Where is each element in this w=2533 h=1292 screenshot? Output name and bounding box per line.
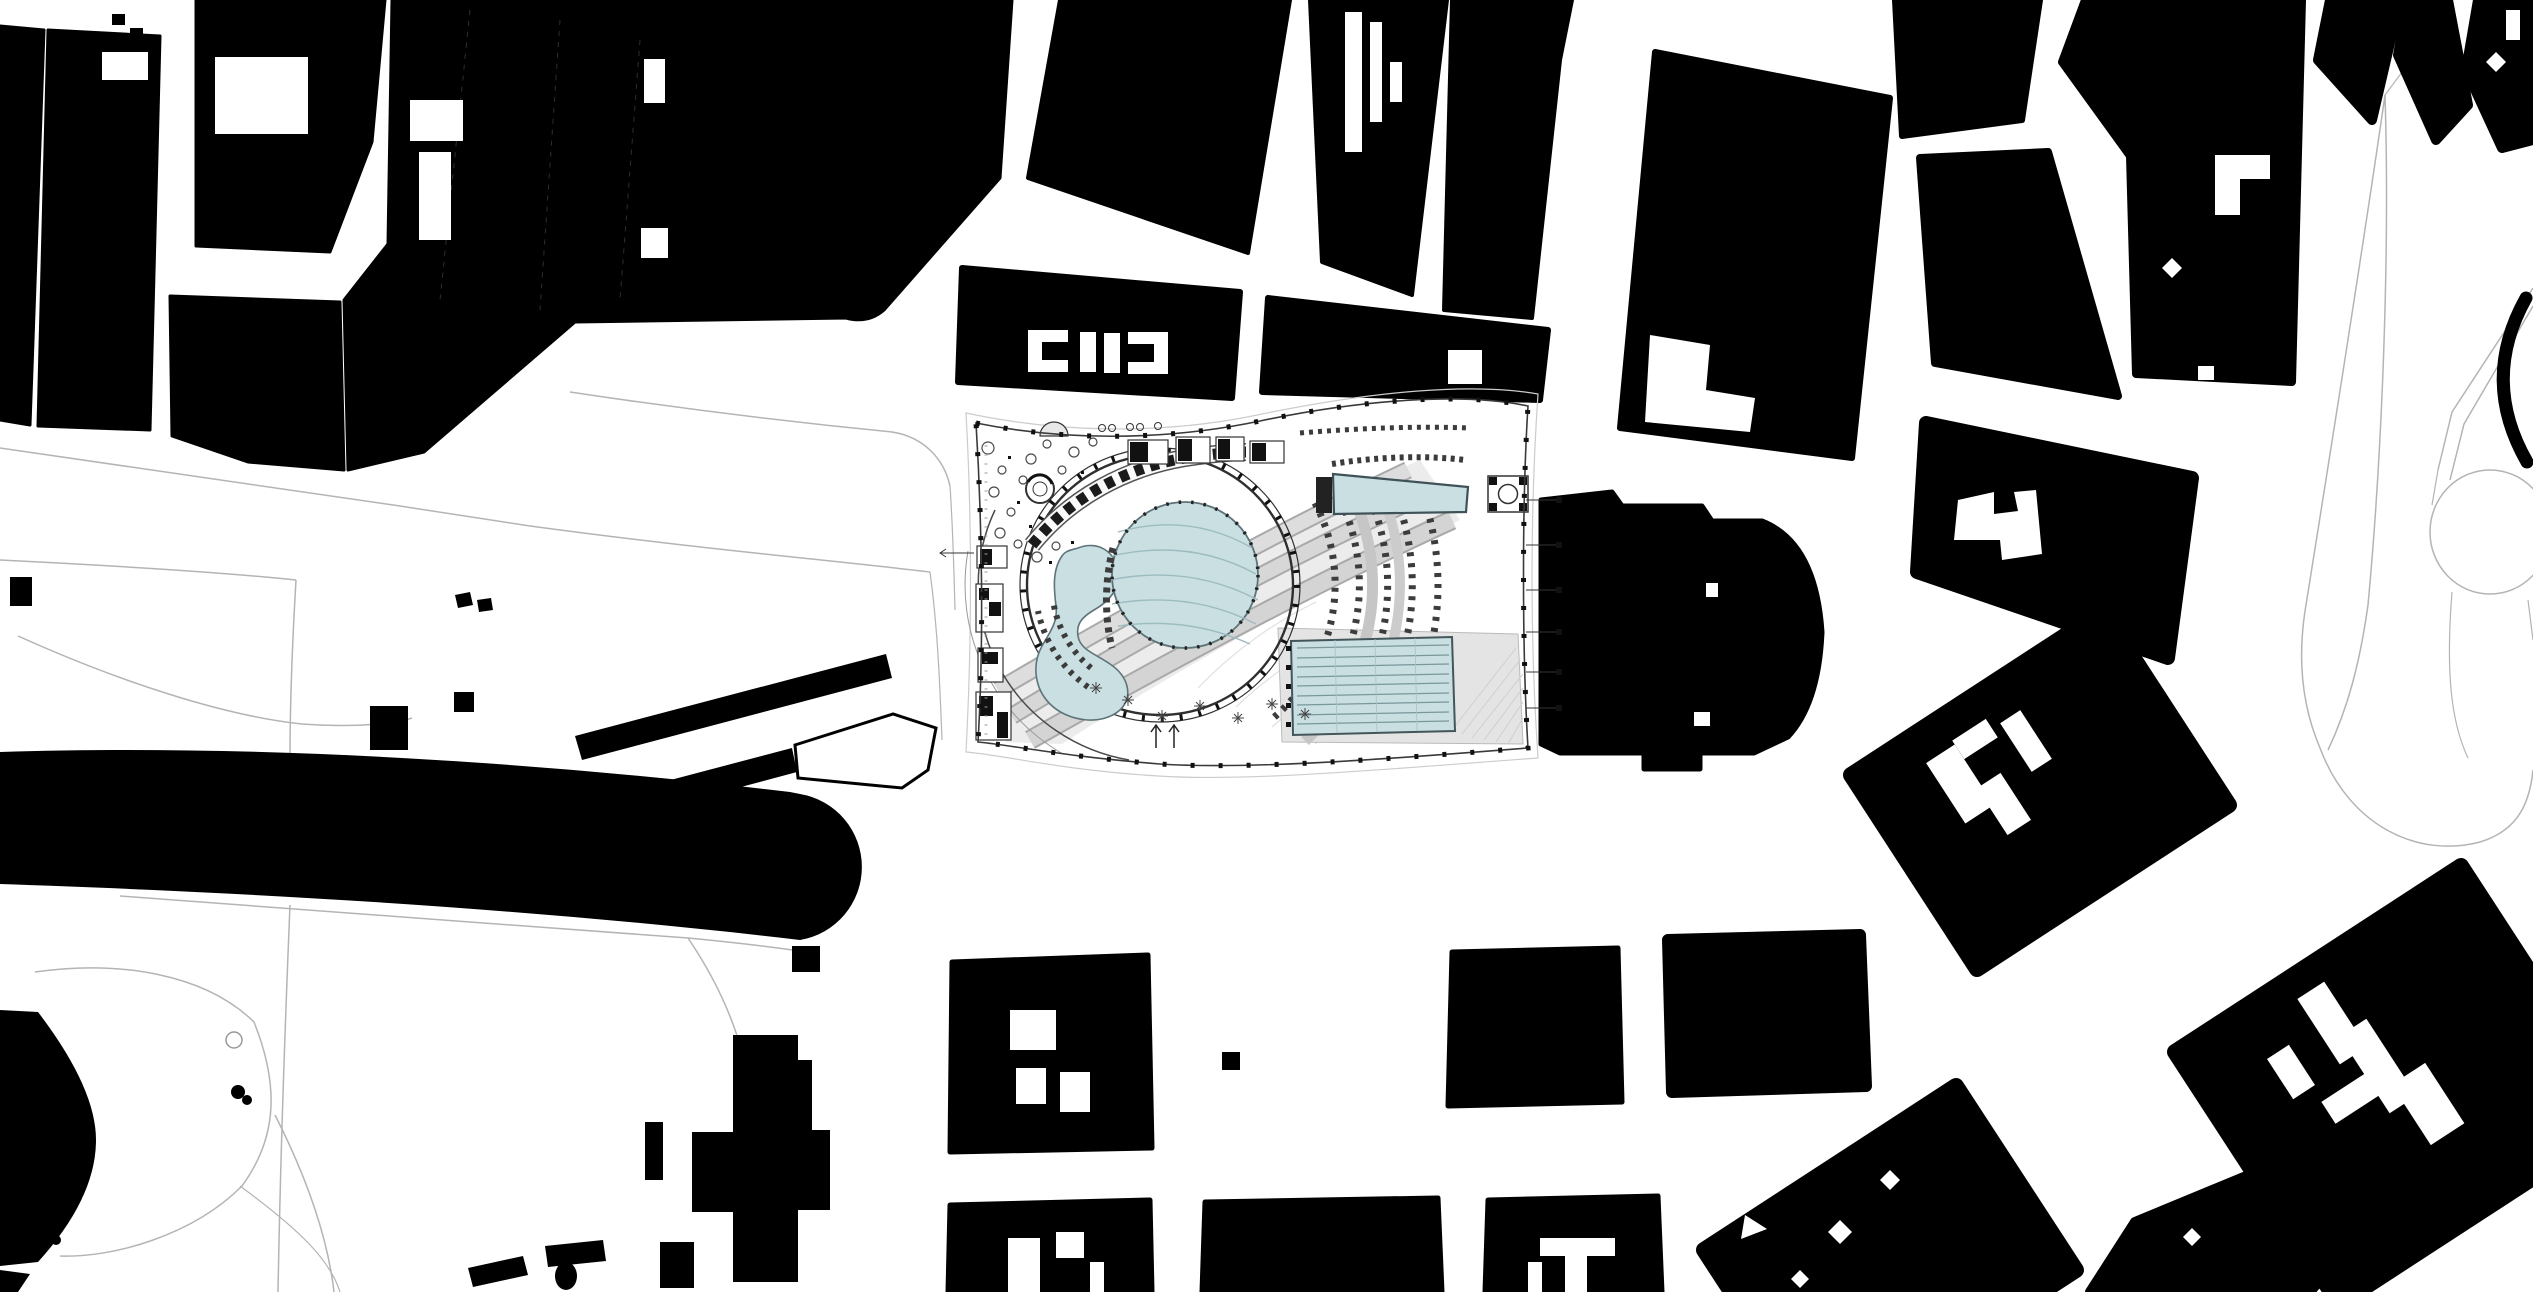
courtyard xyxy=(102,52,148,80)
cross-building xyxy=(692,1035,830,1282)
park-building xyxy=(454,692,474,712)
park-building xyxy=(455,592,473,608)
park-path xyxy=(2449,592,2468,758)
corner-building xyxy=(0,1270,30,1292)
park-dot xyxy=(231,1085,245,1099)
courtyard xyxy=(1370,22,1382,122)
city-block xyxy=(1202,1198,1442,1292)
courtyard xyxy=(615,433,633,445)
city-block xyxy=(950,955,1152,1152)
small-building xyxy=(545,1240,606,1267)
park-building xyxy=(370,706,408,750)
city-block xyxy=(2398,0,2468,140)
plaza-circle-pair xyxy=(1109,425,1116,432)
park-path xyxy=(0,448,930,572)
park-path xyxy=(240,1186,340,1292)
city-block xyxy=(1668,935,1866,1092)
city-block xyxy=(1851,611,2229,969)
small-building xyxy=(645,1122,663,1180)
city-block xyxy=(170,296,344,470)
park-path xyxy=(278,905,290,1292)
courtyard xyxy=(2198,366,2214,380)
city-block xyxy=(1920,152,2118,396)
plaza-circle-pair xyxy=(1137,424,1144,431)
courtyard xyxy=(419,152,451,240)
city-block xyxy=(0,26,44,425)
courtyard xyxy=(1345,12,1362,152)
park-ellipse-dot xyxy=(555,1262,577,1290)
park-path xyxy=(2302,95,2385,748)
small-building xyxy=(792,946,820,972)
courtyard xyxy=(215,57,308,134)
leader-arrow-left xyxy=(940,549,974,557)
courtyard xyxy=(410,100,463,141)
city-block xyxy=(948,1200,1152,1292)
city-site-plan-map xyxy=(0,0,2533,1292)
map-canvas xyxy=(0,0,2533,1292)
park-circle-outline xyxy=(226,1032,242,1048)
park-path xyxy=(2528,600,2533,640)
park-path xyxy=(18,636,412,725)
park-plaza-circle xyxy=(2430,470,2533,594)
courtyard xyxy=(1448,350,1482,384)
landmark-building-d xyxy=(1541,492,1822,769)
park-path xyxy=(2320,748,2533,846)
park-dot xyxy=(242,1095,252,1105)
park-path xyxy=(2432,470,2438,505)
city-block xyxy=(1448,948,1622,1106)
park-path xyxy=(0,560,296,580)
city-block xyxy=(1444,0,1572,318)
corner-pavilion-ring xyxy=(1499,485,1518,504)
city-block xyxy=(38,30,160,430)
city-block xyxy=(2318,0,2400,120)
park-dot xyxy=(51,1235,61,1245)
park-path xyxy=(290,580,296,758)
city-block xyxy=(2466,0,2533,148)
plaza-circle-pair xyxy=(1127,424,1134,431)
small-building xyxy=(660,1242,694,1288)
park-path xyxy=(275,1115,334,1292)
outlined-building-hook xyxy=(795,714,936,788)
park-building xyxy=(477,598,493,612)
edge-pavilion-core xyxy=(982,652,998,664)
city-block xyxy=(1028,0,1290,253)
park-path xyxy=(950,486,955,610)
small-building xyxy=(468,1256,528,1287)
city-block xyxy=(958,268,1240,398)
courtyard xyxy=(641,228,668,258)
courtyard xyxy=(1104,333,1120,373)
park-path xyxy=(930,572,942,740)
upper-pool-building xyxy=(1316,477,1332,513)
park-building xyxy=(10,577,32,606)
city-block xyxy=(1895,0,2040,136)
plaza-circle-pair xyxy=(1099,425,1106,432)
courtyard xyxy=(1390,62,1402,102)
half-disc-building xyxy=(0,1010,96,1266)
city-block xyxy=(1917,423,2192,658)
small-building xyxy=(1222,1052,1240,1070)
courtyard xyxy=(644,59,665,103)
courtyard xyxy=(1080,332,1096,372)
park-path xyxy=(2328,95,2386,750)
